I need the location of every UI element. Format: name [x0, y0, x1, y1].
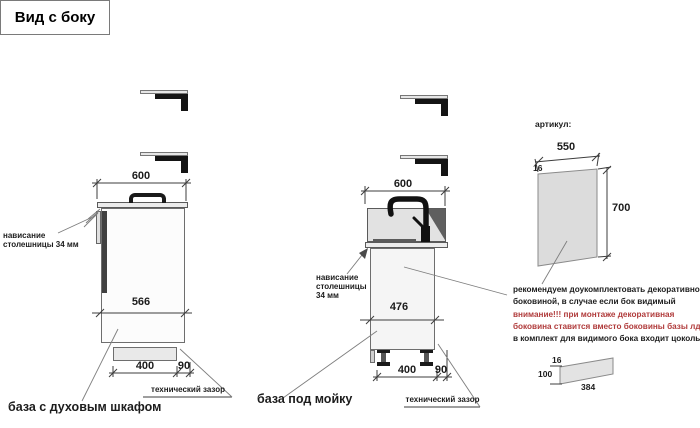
sink-cabinet-name: база под мойку: [257, 393, 352, 407]
leg-stem: [381, 353, 386, 362]
wall-bracket-icon: [400, 95, 448, 121]
dim-left-plinth: 400: [121, 360, 169, 372]
overhang-arrowhead: [359, 248, 368, 259]
sink-cabinet-body: [370, 248, 435, 350]
decorative-side-panel: [538, 169, 597, 266]
view-title-box: Вид с боку: [0, 0, 110, 35]
bracket-post: [441, 159, 448, 176]
left-cabinet-name: база с духовым шкафом: [8, 401, 161, 415]
panel-note-warning-line1: внимание!!! при монтаже декоративная: [513, 309, 700, 321]
dim-panel-thickness: 16: [533, 164, 542, 173]
dim-left-gap: 90: [172, 360, 196, 372]
dim-plinth-length: 384: [581, 383, 595, 392]
oven-cabinet-handle-icon: [129, 193, 166, 203]
panel-note-line5: в комплект для видимого бока входит цоко…: [513, 333, 700, 345]
sink-basin: [367, 208, 446, 242]
oven-cabinet-body: [101, 208, 185, 343]
left-tech-gap-label: технический зазор: [142, 386, 234, 395]
dim-left-inner: 566: [116, 296, 166, 308]
oven-door-handle-edge: [96, 211, 101, 244]
panel-note-line1: рекомендуем доукомплектовать декоративно…: [513, 284, 700, 296]
sink-tech-gap-label: технический зазор: [403, 396, 482, 405]
oven-door-edge: [102, 211, 107, 293]
left-overhang-note: нависание столешницы 34 мм: [3, 232, 79, 250]
dim-panel-height: 700: [612, 202, 630, 214]
sink-cabinet-door-bottom: [370, 350, 375, 363]
dim-plinth-height: 100: [538, 370, 552, 379]
wall-bracket-icon: [140, 90, 188, 116]
panel-note-line2: боковиной, в случае если бок видимый: [513, 296, 700, 308]
article-heading: артикул:: [535, 120, 571, 129]
sink-overhang-note: нависание столешницы 34 мм: [316, 274, 367, 300]
bracket-post: [181, 156, 188, 173]
dim-sink-plinth: 400: [383, 364, 431, 376]
dim-left-top-width: 600: [116, 170, 166, 182]
dim-sink-gap: 90: [429, 364, 453, 376]
side-view-drawing: Вид с боку: [0, 0, 700, 428]
sink-overhang-note-line3: 34 мм: [316, 292, 367, 301]
panel-note-warning-line2: боковина ставится вместо боковины базы л…: [513, 321, 700, 333]
dim-sink-top-width: 600: [380, 178, 426, 190]
left-overhang-note-line2: столешницы 34 мм: [3, 241, 79, 250]
leg-stem: [424, 353, 429, 362]
oven-cabinet-plinth: [113, 347, 177, 361]
view-title: Вид с боку: [15, 9, 96, 26]
dim-sink-inner: 476: [374, 301, 424, 313]
dim-plinth-thickness: 16: [552, 356, 561, 365]
plinth-strip: [560, 358, 613, 384]
dim-panel-width: 550: [545, 141, 587, 153]
bracket-post: [181, 94, 188, 111]
bracket-post: [441, 99, 448, 116]
panel-note: рекомендуем доукомплектовать декоративно…: [513, 284, 700, 345]
